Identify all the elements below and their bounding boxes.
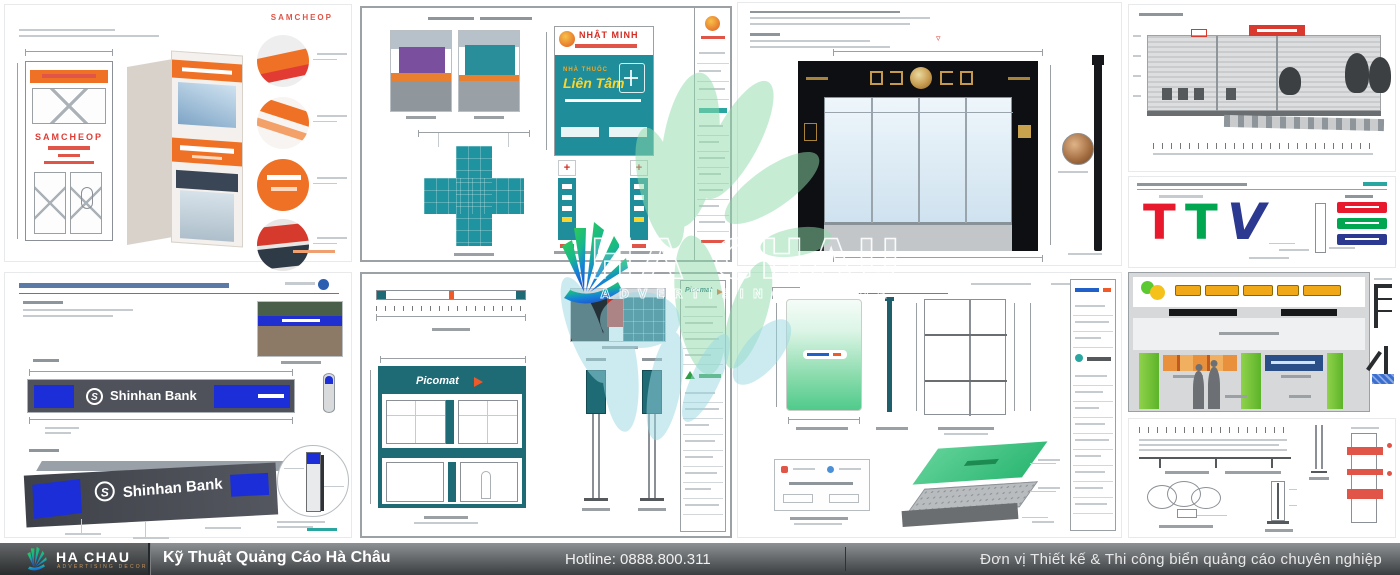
fascia-text: SAMCHEOP [26, 132, 112, 142]
section-stem [654, 414, 656, 498]
shinhan-wordmark: Shinhan Bank [110, 388, 197, 403]
detail-label [1374, 278, 1392, 280]
drawing-caption [432, 328, 470, 331]
green-text [699, 374, 721, 378]
callout-label [1038, 459, 1060, 461]
row-text [1075, 503, 1107, 505]
title-block-row [1073, 434, 1113, 450]
drawing-caption [1165, 471, 1209, 474]
sign-band [1133, 277, 1365, 307]
person-silhouette [1193, 371, 1204, 409]
upper-sign-band [172, 60, 242, 83]
canopy-plan-drawing [1139, 481, 1243, 533]
title-block-row [1073, 482, 1113, 498]
sign-text-blur [634, 184, 644, 189]
sign-subtext-blur [58, 154, 80, 157]
section-blue-cap [307, 453, 320, 464]
drawing-caption [554, 251, 598, 254]
photo-street [459, 81, 520, 112]
shinhan-logo-mark: S [94, 481, 115, 502]
window-dark [1178, 88, 1188, 100]
section-base [584, 498, 608, 501]
sign-subtext-blur [44, 161, 94, 164]
photo-sign [399, 47, 445, 73]
color-swatch-blue [1337, 234, 1387, 245]
gold-glyph [890, 71, 903, 85]
dimension-line [833, 257, 1043, 258]
cross-symbol: + [630, 160, 648, 176]
dimension-line [546, 32, 547, 150]
pharmacy-pillar-sign-1: + [558, 160, 578, 252]
callout-line [1269, 243, 1295, 244]
bracket-detail-1 [1374, 284, 1392, 328]
panel-title-blur [19, 283, 229, 288]
green-pillar [1139, 353, 1159, 409]
black-facade [798, 61, 1038, 251]
facade-outline: SAMCHEOP [25, 61, 113, 241]
legend-text [839, 468, 861, 470]
panel-green-storefront [1128, 272, 1396, 414]
canopy-text-blur [1219, 332, 1279, 335]
green-sign-front [786, 299, 862, 411]
footer-brand: HA CHAU [56, 549, 131, 565]
site-photo-1 [390, 30, 452, 112]
cross-grid [456, 146, 492, 246]
logo-text [807, 353, 829, 356]
note-line [750, 46, 890, 48]
post [1215, 459, 1217, 468]
title-block-row [697, 200, 729, 216]
row-text [699, 88, 725, 90]
sign-text-blur [562, 206, 572, 211]
dim-label [1351, 427, 1379, 429]
tree-icon [685, 371, 695, 379]
section-detail-circle [277, 445, 349, 517]
dim-label [642, 358, 662, 361]
title-block-row [683, 499, 723, 515]
callout-label [317, 237, 347, 239]
company-logo [705, 16, 720, 31]
note-heading [23, 301, 63, 304]
photo-caption [602, 346, 638, 349]
sign-text-blur [271, 187, 297, 191]
brand-logo-yellow [1150, 285, 1165, 300]
detail-circle-3 [257, 159, 309, 211]
sign-letter-block [1303, 285, 1341, 296]
wide-detail-drawing [1135, 425, 1297, 477]
section-back [321, 455, 324, 511]
legend-text [793, 468, 815, 470]
section-stem [592, 414, 594, 498]
transom [459, 415, 517, 416]
pole-base [1267, 521, 1289, 524]
title-block-text [701, 240, 725, 243]
row-text [685, 322, 713, 324]
caption-subline [794, 523, 842, 525]
window-dark [1194, 88, 1204, 100]
title-block: Picomat [680, 280, 726, 532]
gold-plaque [1018, 125, 1031, 138]
level-mark [1133, 95, 1141, 97]
row-text [1075, 471, 1105, 473]
window-pane [458, 400, 518, 444]
title-block-row [697, 152, 729, 168]
dimension-line [29, 419, 293, 420]
row-text [685, 472, 717, 474]
red-band [1347, 489, 1383, 499]
swatch-text [1345, 238, 1379, 240]
callout-label [133, 537, 169, 539]
frame-horizontal [925, 380, 1007, 382]
window-dark [1162, 88, 1172, 100]
panel-shinhan: S Shinhan Bank S Shinhan Bank [4, 272, 352, 538]
blue-end-panel-right [214, 385, 290, 408]
annotation-line [19, 29, 115, 31]
sign-letter-block [1243, 285, 1273, 296]
pharmacy-logo [559, 31, 575, 47]
panel-green-signbox [737, 272, 1122, 538]
drawing-caption [1225, 471, 1281, 474]
cross-symbol: + [558, 160, 576, 176]
title-block [694, 8, 730, 260]
title-block-row [1073, 418, 1113, 434]
info-box [561, 127, 599, 137]
dimension-line [1030, 303, 1031, 411]
column-right [1012, 97, 1038, 251]
dim-label [1289, 395, 1311, 398]
title-block-row [697, 216, 729, 232]
brand-logo-pill [803, 350, 847, 359]
row-text [685, 440, 715, 442]
exploded-signbox-3d [902, 445, 1062, 533]
callout-label [1068, 253, 1102, 255]
footer-studio-title: Kỹ Thuật Quảng Cáo Hà Châu [163, 549, 391, 567]
title-block-row [1073, 386, 1113, 402]
client-logo-text [285, 282, 315, 285]
annotation-line [19, 35, 159, 37]
callout-label [1032, 521, 1054, 523]
text-row-blur [1139, 444, 1279, 446]
samcheop-corner-label: SAMCHEOP [271, 13, 333, 22]
photo-sign [465, 45, 515, 75]
mullion [487, 401, 488, 443]
footer-brand-tagline: ADVERTISING DECOR [57, 564, 148, 570]
title-block-row [1073, 316, 1113, 332]
callout-line [313, 243, 337, 244]
row-text [685, 338, 719, 340]
small-red-box [1191, 29, 1207, 37]
title-block-row [683, 403, 723, 419]
row-text [1075, 375, 1107, 377]
photo-teal-building [623, 297, 666, 342]
gold-medallion [910, 67, 932, 89]
pillar-body [630, 178, 648, 240]
tick [1289, 489, 1297, 490]
drawing-caption [876, 427, 908, 430]
dimension-line [1050, 65, 1051, 245]
swatch-text [1345, 222, 1379, 224]
row-text [1075, 439, 1109, 441]
pillar-base-note [560, 244, 574, 248]
row-text [1075, 321, 1109, 323]
tick-row [1153, 143, 1373, 149]
photo-awning [391, 73, 452, 81]
title-block-row [683, 467, 723, 483]
callout-label [317, 53, 347, 55]
dimension-line [833, 51, 1043, 52]
dimension-line [380, 358, 526, 359]
photo-red-sign [607, 299, 623, 327]
column-line [1315, 425, 1317, 469]
partner-logo [699, 108, 727, 113]
callout-label [45, 432, 71, 434]
sign-text-blur [1257, 29, 1297, 32]
mid-sign-band [172, 138, 242, 167]
dimension-line [25, 51, 113, 52]
row-text [685, 392, 715, 394]
sign-body: NHÀ THUỐC Liên Tâm [555, 55, 653, 155]
title-block [1070, 279, 1116, 531]
drawing-caption [638, 508, 666, 511]
callout-line [313, 121, 337, 122]
ttv-letter-t2: T [1185, 195, 1218, 251]
hanger-rod [438, 133, 439, 147]
footer-bar: HA CHAU ADVERTISING DECOR Kỹ Thuật Quảng… [0, 543, 1400, 575]
sign-header: NHẬT MINH [555, 27, 653, 55]
frame-grid-drawing [924, 299, 1006, 415]
sign-letter-block [1205, 285, 1239, 296]
label-blur [1281, 375, 1311, 378]
sign-text-blur [42, 74, 96, 78]
transom [825, 112, 1013, 113]
red-band [1347, 447, 1383, 455]
note-heading [750, 33, 780, 36]
panel-samcheop: SAMCHEOP SAMCHEOP [4, 4, 352, 262]
row-text [685, 424, 709, 426]
title-block-row [683, 419, 723, 435]
sign-text-blur [267, 175, 301, 180]
callout-label [45, 427, 79, 429]
bracket-line [772, 287, 800, 299]
detail-band [257, 243, 309, 270]
picomat-logo-small: Picomat [685, 287, 712, 294]
panel-picomat: Picomat [360, 272, 732, 538]
blue-end-panel-right [230, 473, 269, 497]
note-line [750, 23, 910, 25]
fascia-band: Picomat [382, 370, 522, 394]
sign-text-blur [634, 206, 644, 211]
lower-canopy [176, 170, 238, 192]
drawing-caption [620, 251, 664, 254]
ttv-letter-v: V [1227, 193, 1266, 251]
note-line [23, 309, 133, 311]
callout-label [205, 527, 241, 529]
color-swatch-green [1337, 218, 1387, 229]
dimension-line [29, 371, 293, 372]
tree-silhouette [1345, 53, 1369, 93]
drawing-caption [796, 427, 848, 430]
sign-side-view [884, 297, 896, 417]
tick-row [376, 306, 526, 311]
row-text [1075, 455, 1101, 457]
red-band [1347, 469, 1383, 475]
fascia-black [798, 61, 1038, 97]
section-view-1 [578, 366, 614, 512]
sign-letter-block [1277, 285, 1299, 296]
footer-hand-icon [24, 546, 50, 573]
callout-label [1038, 487, 1060, 489]
acrylic-face-green [913, 441, 1048, 484]
picomat-elevation: Picomat [378, 366, 526, 508]
storefront-glass [180, 190, 234, 242]
pillar-body [558, 178, 576, 240]
tree-silhouette [1369, 57, 1391, 93]
post [1159, 459, 1161, 468]
detail-circle-2 [257, 97, 309, 149]
legend-text-main [789, 482, 853, 485]
level-mark [1133, 35, 1141, 37]
samcheop-3d-render [127, 47, 247, 251]
post [1271, 459, 1273, 468]
panel-title-blur [1137, 183, 1247, 186]
row-text [699, 157, 725, 159]
title-rule [19, 293, 339, 294]
legend-box [774, 459, 870, 511]
picomat-wordmark: Picomat [416, 375, 459, 387]
detail-circle-4 [257, 219, 309, 271]
sign-subtext-blur [575, 44, 637, 48]
leader-line [324, 486, 344, 487]
callout-label [1058, 171, 1088, 173]
detail-band [257, 221, 309, 246]
round-side-sign [1062, 133, 1094, 165]
title-block-row [697, 46, 729, 64]
partner-logo-text [1087, 357, 1111, 361]
lower-pane [386, 462, 444, 502]
legend-icon-red [781, 466, 788, 473]
leader-line [1030, 463, 1056, 464]
drawing-caption [424, 516, 468, 519]
shop-name: Liên Tâm [563, 75, 624, 91]
title-block-row [1073, 402, 1113, 418]
pillar-base-note [632, 244, 646, 248]
tree-silhouette [1279, 67, 1301, 95]
section-head [642, 370, 662, 414]
partner-logo [1363, 182, 1387, 186]
drawing-caption [790, 517, 848, 520]
caption-subline [944, 433, 988, 435]
footer-mark [293, 250, 335, 253]
photo-caption [406, 116, 436, 119]
window-pane [386, 400, 446, 444]
side-blue-cap [325, 376, 333, 384]
title-block-row [683, 333, 723, 349]
row-text [699, 70, 721, 72]
pole-shaft [1277, 483, 1279, 519]
row-text [699, 52, 725, 54]
title-block-row [1073, 300, 1113, 316]
canopy-blob [1191, 487, 1221, 509]
panel-title-blur [1139, 13, 1183, 16]
frame-vertical [969, 300, 971, 416]
red-marked-elevation [1343, 427, 1393, 531]
leader-line [145, 521, 146, 537]
sign-text-blur [634, 195, 644, 200]
title-block-row [697, 184, 729, 200]
footer-hotline: Hotline: 0888.800.311 [565, 551, 711, 568]
mullion [871, 98, 873, 224]
drawing-caption [938, 427, 994, 430]
face-logo [964, 459, 999, 466]
gold-text-small [806, 77, 828, 80]
base-step [824, 223, 1012, 251]
accent-block [449, 291, 454, 299]
upper-window [178, 82, 236, 128]
callout-label [1329, 247, 1355, 249]
gold-emblem [804, 123, 817, 141]
door-pane [460, 462, 518, 502]
mullion [415, 401, 416, 443]
photo-sign-strip [258, 316, 343, 326]
door-left [34, 172, 66, 234]
title-block-row [683, 435, 723, 451]
title-block-row [683, 451, 723, 467]
footer-mark [307, 528, 337, 531]
green-pillar [1327, 353, 1343, 409]
row-text [699, 189, 723, 191]
door-sign [81, 187, 93, 209]
photo-trees [258, 302, 343, 316]
sign-text-blur [182, 67, 232, 74]
legend-cell [783, 494, 813, 503]
panel-ttv-logo: T T V [1128, 176, 1396, 268]
title-block-row [683, 387, 723, 403]
section-head [586, 370, 606, 414]
red-leader-line [858, 293, 948, 294]
samcheop-elevation: SAMCHEOP [23, 49, 117, 245]
red-marker-dot [1387, 471, 1392, 476]
row-text [699, 141, 719, 143]
drawing-caption [1265, 529, 1293, 532]
street-level-shops [1224, 115, 1384, 131]
note-line [750, 40, 870, 42]
sign-text-blur [192, 155, 222, 160]
red-marker-dot [1387, 443, 1392, 448]
teal-mullion [446, 400, 454, 444]
canopy-band [1133, 318, 1365, 350]
sign-text-blur [180, 145, 234, 154]
drawing-caption [1309, 477, 1329, 480]
sub-sign-black [1169, 309, 1237, 316]
row-text [685, 488, 711, 490]
row-text [699, 221, 725, 223]
sub-sign-black [1281, 309, 1337, 316]
picomat-arrow-icon [474, 377, 483, 387]
panel-technical-details [1128, 418, 1396, 538]
title-block-row [697, 120, 729, 136]
row-text [1075, 337, 1101, 339]
dim-label [586, 358, 606, 361]
row-text [1075, 407, 1099, 409]
column-line [1321, 425, 1323, 469]
column-left [798, 97, 824, 251]
leader-line [81, 519, 82, 533]
ttv-letter-t1: T [1143, 195, 1176, 251]
row-text [685, 504, 719, 506]
title-block-row [697, 136, 729, 152]
gold-glyph [940, 71, 953, 85]
panel-title-blur [480, 17, 532, 20]
